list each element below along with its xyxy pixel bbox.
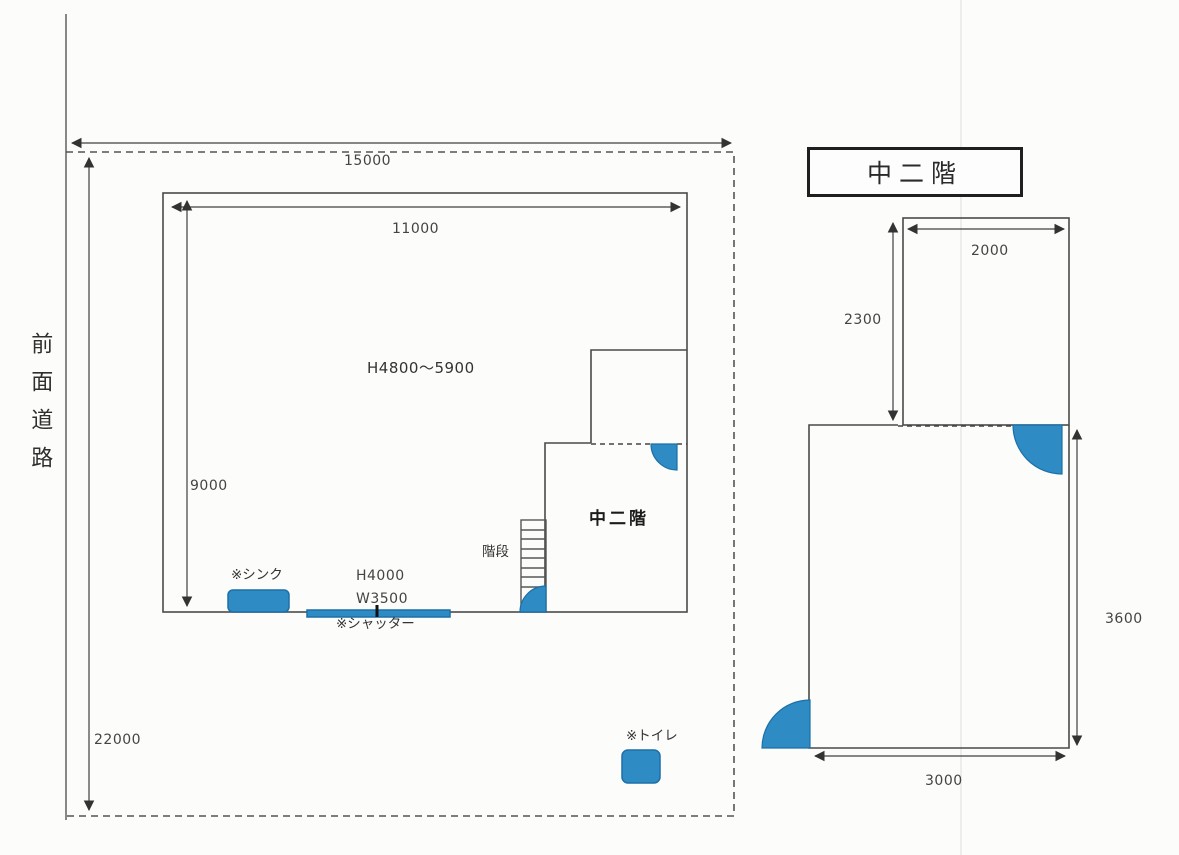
mezzanine-overhang-outline	[591, 350, 687, 443]
sink-icon	[228, 590, 289, 612]
front-road-label: 前面道路	[27, 332, 51, 484]
shutter-width-label: W3500	[356, 592, 408, 607]
upper-width-dim-label: 2000	[971, 244, 1009, 259]
site-depth-dim-label: 22000	[94, 733, 141, 748]
lower-height-dim-label: 3600	[1105, 612, 1143, 627]
site-width-dim-label: 15000	[344, 154, 391, 169]
mezzanine-lower-room	[809, 425, 1069, 748]
toilet-icon	[622, 750, 660, 783]
shutter-height-label: H4000	[356, 569, 405, 584]
lower-width-dim-label: 3000	[925, 774, 963, 789]
door-swing-icon-room	[651, 444, 677, 470]
door-swing-icon-stairs	[520, 586, 546, 612]
door-swing-icon-mezz-bottom	[762, 700, 810, 748]
mezzanine-room-walls	[545, 443, 591, 612]
mezzanine-plan-title: 中二階	[807, 147, 1023, 197]
ceiling-height-label: H4800〜5900	[367, 360, 475, 377]
stairs-treads	[521, 530, 546, 587]
toilet-label: ※トイレ	[626, 729, 678, 744]
building-depth-dim-label: 9000	[190, 479, 228, 494]
sink-label: ※シンク	[231, 568, 283, 583]
site-boundary	[66, 152, 734, 816]
floor-plan-drawing	[0, 0, 1179, 855]
upper-height-dim-label: 2300	[844, 313, 882, 328]
door-swing-icon-mezz-top	[1013, 425, 1062, 474]
shutter-label: ※シャッター	[336, 617, 415, 632]
building-outline	[163, 193, 687, 612]
mezzanine-room-label: 中二階	[589, 510, 649, 529]
building-width-dim-label: 11000	[392, 222, 439, 237]
floor-plan-page: 前面道路 15000 22000 11000 9000 H4800〜5900 中…	[0, 0, 1179, 855]
stairs-label: 階段	[482, 545, 509, 560]
mezzanine-plan-title-text: 中二階	[867, 154, 963, 190]
